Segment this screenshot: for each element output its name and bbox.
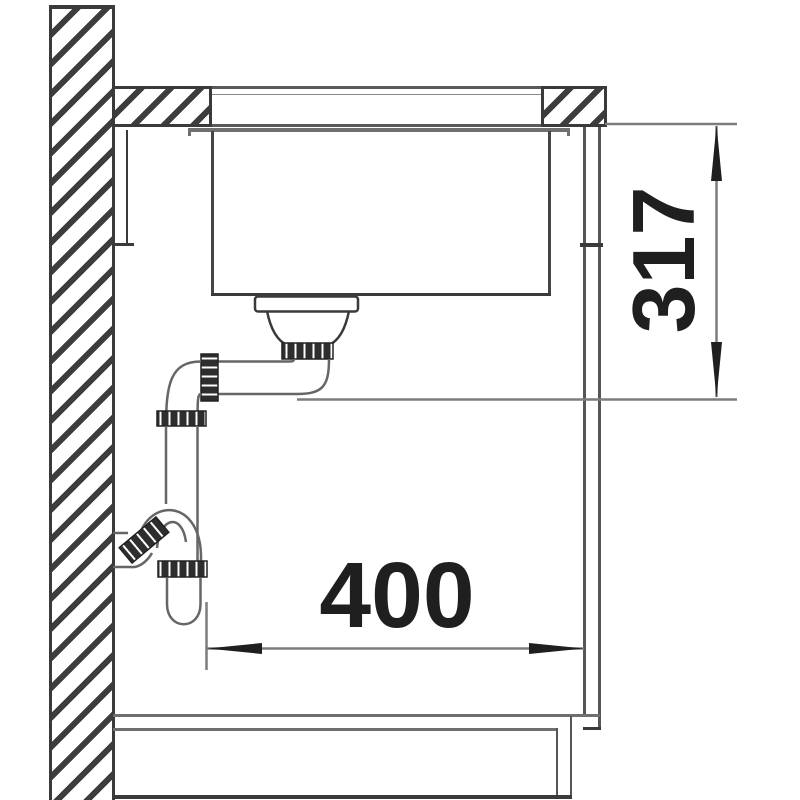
plumbing-and-dimension-drawing (0, 0, 800, 800)
drain-strainer (255, 297, 358, 360)
dim-400-arrow-right (529, 643, 584, 654)
standpipe-coupling-nut (157, 411, 206, 426)
standpipe (166, 426, 198, 561)
dim-400-arrow-left (207, 643, 262, 654)
dimension-height-label: 317 (614, 160, 714, 360)
trap-cup (167, 578, 201, 624)
strainer-locknut (282, 343, 333, 359)
dimension-width-label: 400 (317, 550, 477, 642)
trap-cup-nut (158, 561, 207, 577)
technical-drawing-canvas: 400 317 (0, 0, 800, 800)
drain-elbow-right (218, 359, 329, 394)
pipe-coupling-nut (201, 354, 218, 401)
